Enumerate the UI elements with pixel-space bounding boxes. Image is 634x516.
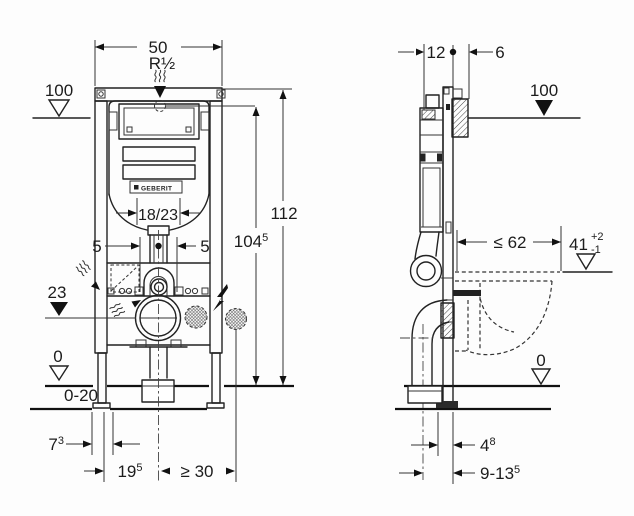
level-mark-100-side: 100 xyxy=(468,81,580,118)
wall-anchor-plate xyxy=(452,89,468,137)
dim-leg-label: 73 xyxy=(48,435,64,454)
dim-offset-left-label: 5 xyxy=(92,237,101,256)
level-mark-0-front: 0 0-20 xyxy=(50,347,98,405)
electrical-symbol xyxy=(213,284,228,311)
frame-rail-left xyxy=(95,101,107,353)
dim-flush-plate: 18/23 xyxy=(116,198,201,225)
alt-socket-outer xyxy=(226,309,247,330)
dim-rim-height: 41 +2 -1 xyxy=(563,231,612,272)
corner-screw-icon xyxy=(217,90,225,98)
dim-max-62: ≤ 62 xyxy=(457,226,561,271)
dim-center-left-label: 195 xyxy=(117,462,142,481)
level-triangle-icon xyxy=(50,302,68,316)
dim-flush-plate-label: 18/23 xyxy=(138,207,178,224)
dim-9-13-label: 9-135 xyxy=(480,464,520,483)
side-view: 12 6 100 ≤ 62 41 +2 -1 0 xyxy=(395,43,612,484)
water-connection-size: R½ xyxy=(149,54,175,73)
dim-offset-right-label: 5 xyxy=(200,237,209,256)
dim-4-8-label: 48 xyxy=(480,436,496,455)
drain-outlet-box xyxy=(142,380,174,402)
level-triangle-icon xyxy=(49,100,69,116)
dim-height-connection-label: 1045 xyxy=(234,232,269,251)
level-100-label: 100 xyxy=(45,81,73,100)
wc-pan-outline xyxy=(455,272,560,355)
installation-dimensions-drawing: GEBERIT xyxy=(0,0,634,516)
dim-depth-conn-label: 6 xyxy=(495,43,504,62)
dim-rim-value: 41 xyxy=(569,235,588,254)
frame-rail-right xyxy=(210,101,222,353)
drawing-canvas: GEBERIT xyxy=(0,0,634,516)
dim-max-62-label: ≤ 62 xyxy=(494,233,527,252)
dim-depth-frame-label: 12 xyxy=(427,43,446,62)
fixing-rod xyxy=(453,290,481,296)
level-100-label: 100 xyxy=(530,81,558,100)
concealed-cistern: GEBERIT xyxy=(109,101,209,263)
level-23-label: 23 xyxy=(48,283,67,302)
level-triangle-icon xyxy=(535,100,553,116)
alt-water-inlet-left xyxy=(75,260,100,290)
level-triangle-icon xyxy=(50,366,68,380)
dim-side-min-label: ≥ 30 xyxy=(181,462,214,481)
geberit-logo: GEBERIT xyxy=(130,181,182,193)
foot-plate-right xyxy=(207,403,224,408)
brand-label: GEBERIT xyxy=(141,186,172,193)
side-bracket-left xyxy=(109,112,117,130)
dim-leg-offset: 73 xyxy=(48,412,140,455)
alt-socket-inner xyxy=(185,306,207,328)
corner-screw-icon xyxy=(97,90,105,98)
dim-bottom-side: 48 9-135 xyxy=(399,412,520,484)
flush-plate-opening xyxy=(119,104,199,139)
water-supply-symbol xyxy=(154,70,166,112)
front-view: GEBERIT xyxy=(30,38,298,483)
side-bracket-right xyxy=(201,112,209,130)
outlet-box-side xyxy=(408,386,442,403)
down-arrow-icon xyxy=(154,86,166,98)
frame-leg-right xyxy=(212,353,220,403)
dim-height-total-label: 112 xyxy=(270,204,297,223)
level-mark-0-side: 0 xyxy=(532,351,550,384)
cistern-side-profile xyxy=(420,95,443,232)
level-triangle-icon xyxy=(532,369,550,384)
flush-bend-front xyxy=(144,268,174,296)
level-triangle-icon xyxy=(577,254,595,269)
water-connection-point xyxy=(155,101,166,112)
reference-point xyxy=(450,49,456,55)
lightning-bolt-icon xyxy=(213,284,228,311)
center-point xyxy=(155,243,161,249)
level-0-label: 0 xyxy=(536,351,545,370)
level-mark-100-front: 100 xyxy=(33,81,90,118)
dim-rim-tol-plus: +2 xyxy=(591,231,604,243)
frame-leg-left xyxy=(98,353,106,403)
water-wave-icon xyxy=(75,260,91,276)
level-0-label: 0 xyxy=(53,347,62,366)
threaded-rods xyxy=(441,303,454,338)
water-wave-icon xyxy=(109,302,125,317)
arrow-icon xyxy=(132,300,142,308)
water-connection-label: R½ xyxy=(149,54,175,73)
floor-range-label: 0-20 xyxy=(64,386,98,405)
